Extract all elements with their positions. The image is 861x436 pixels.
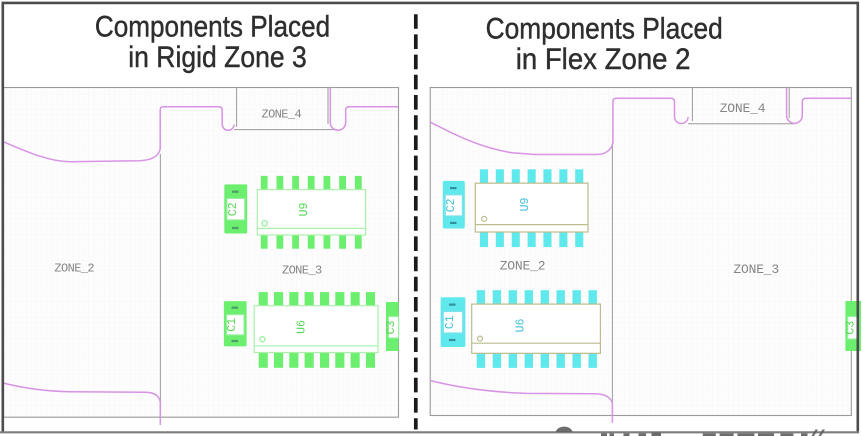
svg-text:ZONE_4: ZONE_4 [720, 101, 766, 116]
svg-text:ZONE_2: ZONE_2 [500, 259, 546, 274]
svg-text:ZONE_3: ZONE_3 [282, 264, 322, 278]
svg-text:U6: U6 [514, 319, 527, 333]
svg-text:Components Placed: Components Placed [486, 11, 723, 45]
svg-text:U9: U9 [519, 198, 532, 212]
svg-text:C1: C1 [226, 318, 239, 332]
svg-text:C3: C3 [845, 321, 858, 335]
svg-text:C2: C2 [445, 198, 458, 212]
svg-text:Components Placed: Components Placed [95, 10, 330, 43]
svg-text:C3: C3 [385, 321, 398, 335]
svg-text:C2: C2 [227, 202, 240, 216]
svg-text:C1: C1 [444, 315, 457, 329]
svg-text:in Flex Zone 2: in Flex Zone 2 [516, 43, 691, 76]
svg-text:in Rigid Zone 3: in Rigid Zone 3 [128, 41, 306, 75]
svg-text:ZONE_4: ZONE_4 [261, 108, 301, 122]
svg-text:U6: U6 [296, 320, 309, 334]
svg-text:U9: U9 [298, 203, 311, 217]
svg-text:ZONE_2: ZONE_2 [54, 262, 94, 276]
svg-text:ZONE_3: ZONE_3 [733, 262, 779, 277]
